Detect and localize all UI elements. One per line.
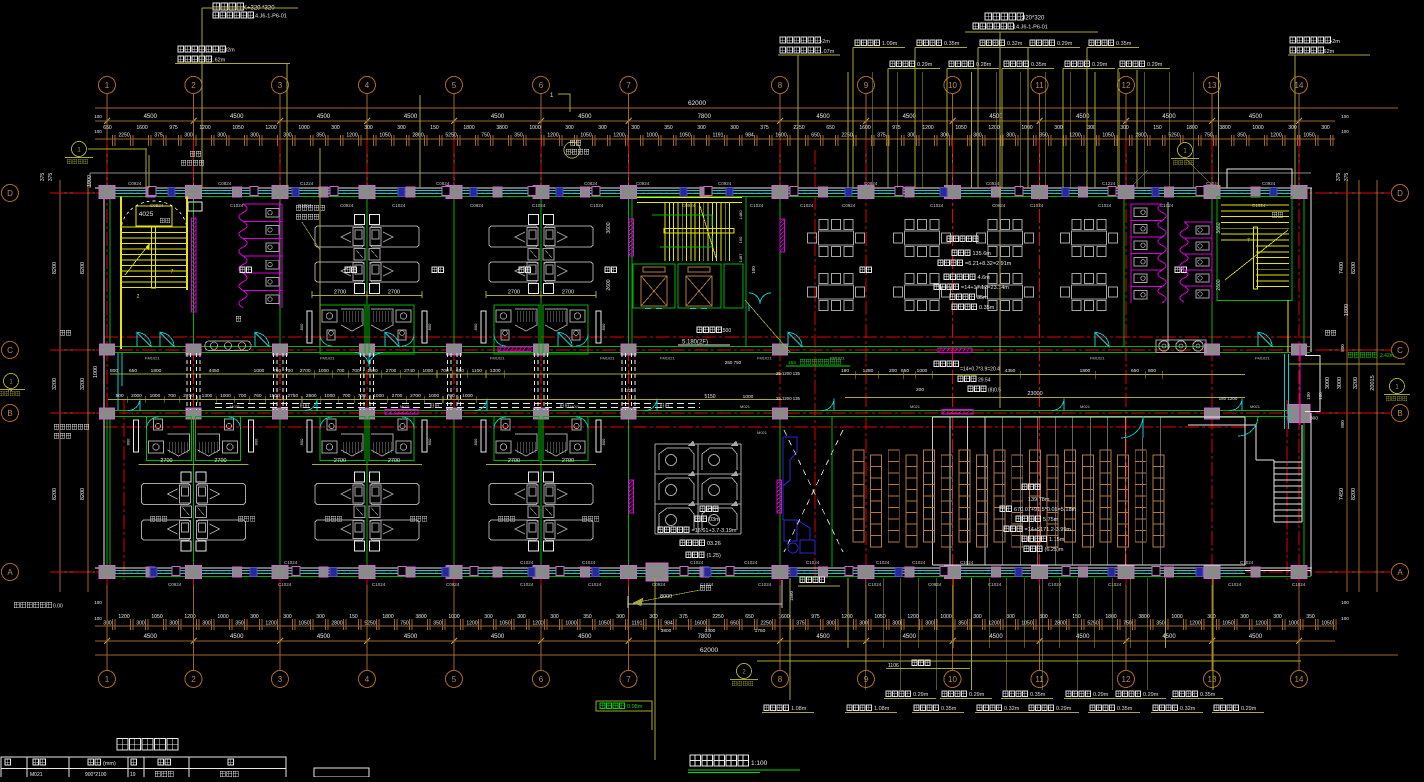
svg-text:C2024: C2024 xyxy=(1206,181,1220,186)
svg-text:2: 2 xyxy=(137,294,140,300)
svg-text:C0824: C0824 xyxy=(218,181,232,186)
svg-text:300: 300 xyxy=(973,133,982,139)
svg-text:FM1021: FM1021 xyxy=(600,356,615,361)
svg-text:2700: 2700 xyxy=(388,290,400,296)
svg-text:1200: 1200 xyxy=(1255,621,1266,627)
svg-text:C1024: C1024 xyxy=(1030,203,1044,208)
svg-text:C0824: C0824 xyxy=(584,181,598,186)
svg-text:1800: 1800 xyxy=(1186,125,1197,131)
svg-text:1200: 1200 xyxy=(265,125,276,131)
svg-text:350: 350 xyxy=(1156,621,1165,627)
svg-text:300: 300 xyxy=(730,125,739,131)
svg-text:700: 700 xyxy=(168,393,176,399)
svg-text:0.29m: 0.29m xyxy=(1147,62,1163,68)
svg-text:0.29m: 0.29m xyxy=(1241,706,1257,712)
svg-text:0.29m: 0.29m xyxy=(913,692,929,698)
svg-text:180 1200: 180 1200 xyxy=(1219,396,1238,401)
svg-text:1000: 1000 xyxy=(150,393,161,399)
svg-text:C0924: C0924 xyxy=(470,203,484,208)
svg-text:670.07+91.5*0.01=5.18m: 670.07+91.5*0.01=5.18m xyxy=(1014,507,1077,513)
svg-text:1050: 1050 xyxy=(1021,621,1032,627)
svg-text:6: 6 xyxy=(539,81,544,90)
svg-text:300: 300 xyxy=(364,125,373,131)
svg-text:5150: 5150 xyxy=(704,394,715,400)
svg-text:C1024: C1024 xyxy=(298,203,312,208)
svg-text:C1024: C1024 xyxy=(1108,582,1122,587)
svg-text:5: 5 xyxy=(452,81,457,90)
svg-text:4500: 4500 xyxy=(144,114,158,120)
svg-text:1600: 1600 xyxy=(136,125,147,131)
svg-text:300: 300 xyxy=(907,133,916,139)
svg-text:8200: 8200 xyxy=(80,488,86,500)
svg-text:2800: 2800 xyxy=(412,133,423,139)
svg-text:4: 4 xyxy=(365,81,370,90)
svg-text:8000: 8000 xyxy=(660,594,672,600)
svg-text:4500: 4500 xyxy=(317,634,331,640)
svg-text:1800: 1800 xyxy=(463,125,474,131)
svg-text:2700: 2700 xyxy=(562,290,574,296)
svg-text:300: 300 xyxy=(136,621,145,627)
svg-text:700: 700 xyxy=(336,368,344,374)
svg-text:2700: 2700 xyxy=(410,393,421,399)
svg-text:FM1021: FM1021 xyxy=(660,356,675,361)
svg-text:C0924: C0924 xyxy=(636,181,650,186)
svg-text:0.35m: 0.35m xyxy=(979,305,995,311)
svg-text:1191: 1191 xyxy=(632,621,643,627)
svg-text:8: 8 xyxy=(778,675,783,684)
svg-text:190: 190 xyxy=(841,368,849,374)
svg-text:300: 300 xyxy=(973,614,982,620)
svg-text:800: 800 xyxy=(1340,344,1345,352)
svg-text:C1024: C1024 xyxy=(806,560,820,565)
svg-text:C1024: C1024 xyxy=(590,203,604,208)
svg-text:1000: 1000 xyxy=(646,133,657,139)
svg-text:62000: 62000 xyxy=(700,647,718,654)
svg-text:300: 300 xyxy=(892,621,901,627)
svg-text:300: 300 xyxy=(169,621,178,627)
svg-text:2700: 2700 xyxy=(388,458,400,464)
svg-text:C: C xyxy=(7,346,13,355)
svg-text:975: 975 xyxy=(892,125,901,131)
svg-text:5.75m: 5.75m xyxy=(1043,517,1059,523)
svg-text:0.28m: 0.28m xyxy=(976,62,992,68)
svg-text:300: 300 xyxy=(250,614,259,620)
svg-text:FM1021: FM1021 xyxy=(320,356,335,361)
svg-text:300: 300 xyxy=(217,133,226,139)
svg-text:0.29m: 0.29m xyxy=(917,62,933,68)
svg-text:9: 9 xyxy=(864,675,869,684)
svg-text:5: 5 xyxy=(452,675,457,684)
svg-text:(1.25): (1.25) xyxy=(707,553,722,559)
svg-text:350: 350 xyxy=(1237,133,1246,139)
svg-text:C1024: C1024 xyxy=(868,582,882,587)
svg-text:4500: 4500 xyxy=(230,634,244,640)
svg-text:800: 800 xyxy=(427,438,432,445)
svg-text:1000: 1000 xyxy=(565,621,576,627)
svg-text:2700: 2700 xyxy=(508,458,520,464)
svg-text:3000: 3000 xyxy=(1325,377,1331,389)
svg-text:C1024: C1024 xyxy=(1292,582,1306,587)
svg-text:=14+17.12=23.14m: =14+17.12=23.14m xyxy=(961,285,1009,291)
svg-text:900*2100: 900*2100 xyxy=(85,772,107,777)
svg-text:7450: 7450 xyxy=(1339,488,1345,500)
svg-text:5.180(2F): 5.180(2F) xyxy=(682,340,708,346)
svg-text:984: 984 xyxy=(745,133,754,139)
svg-text:1050: 1050 xyxy=(151,614,162,620)
svg-text:300: 300 xyxy=(925,621,934,627)
svg-text:700: 700 xyxy=(352,368,360,374)
svg-text:300: 300 xyxy=(1054,125,1063,131)
svg-text:3800: 3800 xyxy=(1219,125,1230,131)
svg-text:1800: 1800 xyxy=(151,368,162,374)
svg-text:2700: 2700 xyxy=(562,458,574,464)
svg-text:03m: 03m xyxy=(709,517,720,523)
svg-text:1000: 1000 xyxy=(462,393,473,399)
svg-text:150: 150 xyxy=(430,125,439,131)
svg-text:25 1200 135: 25 1200 135 xyxy=(776,396,801,401)
svg-text:300: 300 xyxy=(1006,614,1015,620)
svg-text:3200: 3200 xyxy=(52,378,58,390)
svg-text:3800: 3800 xyxy=(661,628,672,634)
svg-text:3200: 3200 xyxy=(80,378,86,390)
svg-text:100: 100 xyxy=(1341,129,1349,134)
svg-text:375: 375 xyxy=(1344,173,1350,182)
svg-text:M021: M021 xyxy=(570,404,581,409)
svg-text:350: 350 xyxy=(1306,614,1315,620)
svg-text:1050: 1050 xyxy=(955,125,966,131)
svg-text:1580: 1580 xyxy=(789,590,794,601)
svg-text:2250: 2250 xyxy=(793,125,804,131)
svg-text:300: 300 xyxy=(283,614,292,620)
svg-text:1200: 1200 xyxy=(613,133,624,139)
svg-text:2700: 2700 xyxy=(300,368,311,374)
svg-text:2: 2 xyxy=(191,675,196,684)
svg-text:1800: 1800 xyxy=(1080,368,1091,374)
svg-text:150: 150 xyxy=(738,236,743,243)
svg-text:1050: 1050 xyxy=(298,621,309,627)
svg-text:2800: 2800 xyxy=(331,621,342,627)
svg-text:C1224: C1224 xyxy=(1102,181,1116,186)
svg-text:C0924: C0924 xyxy=(446,582,460,587)
svg-text:1050: 1050 xyxy=(499,621,510,627)
svg-text:4500: 4500 xyxy=(903,114,917,120)
svg-text:1050: 1050 xyxy=(1303,133,1314,139)
svg-text:0.29m: 0.29m xyxy=(1143,692,1159,698)
svg-text:1500: 1500 xyxy=(269,393,280,399)
svg-text:0.35m: 0.35m xyxy=(1200,692,1216,698)
svg-text:800: 800 xyxy=(1148,368,1156,374)
svg-text:0.29m: 0.29m xyxy=(969,692,985,698)
svg-text:0.35m: 0.35m xyxy=(1030,692,1046,698)
svg-text:1000: 1000 xyxy=(324,393,335,399)
svg-text:C1024: C1024 xyxy=(750,203,764,208)
svg-text:984: 984 xyxy=(664,621,673,627)
svg-text:750: 750 xyxy=(481,133,490,139)
svg-text:3300: 3300 xyxy=(705,628,716,634)
svg-text:150: 150 xyxy=(349,614,358,620)
svg-text:4500: 4500 xyxy=(1249,634,1263,640)
svg-text:300: 300 xyxy=(1120,125,1129,131)
svg-text:2740: 2740 xyxy=(404,368,415,374)
svg-text:375: 375 xyxy=(154,133,163,139)
svg-text:0.08m: 0.08m xyxy=(627,704,643,710)
svg-text:300: 300 xyxy=(103,621,112,627)
svg-text:1600: 1600 xyxy=(859,125,870,131)
svg-text:750: 750 xyxy=(1204,133,1213,139)
svg-text:1: 1 xyxy=(105,81,110,90)
svg-text:375: 375 xyxy=(796,621,805,627)
svg-text:800: 800 xyxy=(473,323,478,330)
svg-text:1000: 1000 xyxy=(743,394,754,400)
svg-text:C1024: C1024 xyxy=(582,560,596,565)
svg-text:FM1021: FM1021 xyxy=(1255,356,1270,361)
svg-text:650: 650 xyxy=(901,368,909,374)
svg-text:4025: 4025 xyxy=(139,211,154,218)
svg-text:1.07m: 1.07m xyxy=(819,49,835,55)
svg-text:1000: 1000 xyxy=(529,125,540,131)
svg-text:1500: 1500 xyxy=(720,328,731,334)
svg-text:300: 300 xyxy=(565,125,574,131)
svg-text:350: 350 xyxy=(235,621,244,627)
svg-text:5250: 5250 xyxy=(445,133,456,139)
svg-text:300: 300 xyxy=(1087,125,1096,131)
svg-text:FM1021: FM1021 xyxy=(145,356,160,361)
svg-text:7400: 7400 xyxy=(1339,262,1345,274)
svg-text:4450: 4450 xyxy=(209,368,220,374)
svg-text:100: 100 xyxy=(94,600,102,605)
svg-text:8200: 8200 xyxy=(80,262,86,274)
svg-text:0.29m: 0.29m xyxy=(1093,692,1109,698)
svg-text:800: 800 xyxy=(299,323,304,330)
svg-text:100: 100 xyxy=(1306,392,1311,400)
svg-text:M021: M021 xyxy=(400,404,411,409)
svg-text:1000: 1000 xyxy=(1171,614,1182,620)
svg-text:29.54: 29.54 xyxy=(978,378,991,384)
svg-text:12: 12 xyxy=(1122,675,1131,684)
svg-text:1.15m: 1.15m xyxy=(1049,537,1065,543)
svg-text:1000: 1000 xyxy=(428,393,439,399)
svg-text:350: 350 xyxy=(433,621,442,627)
svg-text:2700: 2700 xyxy=(392,393,403,399)
svg-text:300: 300 xyxy=(940,133,949,139)
svg-text:1200: 1200 xyxy=(118,614,129,620)
svg-text:300: 300 xyxy=(859,621,868,627)
svg-text:800: 800 xyxy=(427,323,432,330)
svg-text:1800: 1800 xyxy=(1105,614,1116,620)
svg-text:300: 300 xyxy=(250,133,259,139)
svg-text:4500: 4500 xyxy=(491,634,505,640)
svg-text:C1024: C1024 xyxy=(588,582,602,587)
svg-text:4500: 4500 xyxy=(491,114,505,120)
svg-text:800: 800 xyxy=(1340,420,1345,428)
svg-text:1300: 1300 xyxy=(490,368,501,374)
svg-text:35m: 35m xyxy=(977,295,988,301)
svg-text:>2m: >2m xyxy=(1329,39,1340,45)
svg-text:300: 300 xyxy=(397,125,406,131)
svg-text:C1024: C1024 xyxy=(960,560,974,565)
svg-text:.62m: .62m xyxy=(1322,49,1335,55)
svg-text:5250: 5250 xyxy=(1168,133,1179,139)
svg-text:10: 10 xyxy=(948,675,957,684)
svg-text:C0924: C0924 xyxy=(986,181,1000,186)
svg-text:3: 3 xyxy=(278,675,283,684)
svg-text:4500: 4500 xyxy=(816,114,830,120)
svg-text:100: 100 xyxy=(94,616,102,621)
svg-text:4500: 4500 xyxy=(317,114,331,120)
svg-text:1000: 1000 xyxy=(940,614,951,620)
svg-text:2700: 2700 xyxy=(334,290,346,296)
svg-text:1050: 1050 xyxy=(1222,621,1233,627)
svg-text:8200: 8200 xyxy=(52,488,58,500)
svg-text:300: 300 xyxy=(631,125,640,131)
svg-text:1050: 1050 xyxy=(580,133,591,139)
svg-text:139.78m: 139.78m xyxy=(1028,497,1050,503)
svg-text:2000: 2000 xyxy=(131,393,142,399)
svg-text:1: 1 xyxy=(105,675,110,684)
svg-text:700: 700 xyxy=(358,393,366,399)
svg-text:2800: 2800 xyxy=(306,393,317,399)
svg-text:0.32m: 0.32m xyxy=(1180,706,1196,712)
svg-text:C: C xyxy=(1397,346,1403,355)
svg-text:C0824: C0824 xyxy=(436,181,450,186)
svg-text:300: 300 xyxy=(1240,614,1249,620)
svg-text:C0924: C0924 xyxy=(842,203,856,208)
svg-text:4500: 4500 xyxy=(144,634,158,640)
svg-text:1050: 1050 xyxy=(1321,621,1332,627)
svg-text:23000: 23000 xyxy=(1027,391,1042,397)
svg-text:1200: 1200 xyxy=(922,125,933,131)
svg-text:100: 100 xyxy=(94,114,102,119)
svg-text:C0924: C0924 xyxy=(340,203,354,208)
svg-text:(6.25)m: (6.25)m xyxy=(1045,547,1064,553)
svg-text:1050: 1050 xyxy=(232,125,243,131)
svg-text:250 750: 250 750 xyxy=(725,360,742,365)
svg-text:100: 100 xyxy=(1341,616,1349,621)
svg-text:1200: 1200 xyxy=(199,125,210,131)
svg-text:100: 100 xyxy=(1318,392,1323,400)
svg-text:1200: 1200 xyxy=(1270,133,1281,139)
svg-text:3000: 3000 xyxy=(1337,377,1343,389)
svg-text:1.08m: 1.08m xyxy=(874,706,890,712)
svg-text:8200: 8200 xyxy=(1351,488,1357,500)
svg-text:C1224: C1224 xyxy=(300,181,314,186)
svg-text:800: 800 xyxy=(126,438,131,445)
svg-text:1200: 1200 xyxy=(547,133,558,139)
svg-text:1000: 1000 xyxy=(917,368,928,374)
svg-text:1200: 1200 xyxy=(988,621,999,627)
svg-text:0.35m: 0.35m xyxy=(1116,41,1132,47)
svg-text:300: 300 xyxy=(331,125,340,131)
svg-text:9: 9 xyxy=(864,81,869,90)
svg-text:C1024: C1024 xyxy=(520,582,534,587)
svg-text:3800: 3800 xyxy=(496,125,507,131)
svg-text:4500: 4500 xyxy=(816,634,830,640)
svg-text:1600: 1600 xyxy=(775,133,786,139)
svg-text:100: 100 xyxy=(751,266,756,274)
svg-text:1000: 1000 xyxy=(298,125,309,131)
svg-text:7800: 7800 xyxy=(698,634,712,640)
svg-text:11: 11 xyxy=(1035,675,1044,684)
svg-text:4500: 4500 xyxy=(1076,634,1090,640)
svg-text:5250: 5250 xyxy=(364,621,375,627)
svg-text:650: 650 xyxy=(103,125,112,131)
svg-text:300: 300 xyxy=(1321,125,1330,131)
svg-text:1200: 1200 xyxy=(466,621,477,627)
svg-text:C0924: C0924 xyxy=(682,203,696,208)
svg-text:C0924: C0924 xyxy=(1262,181,1276,186)
svg-text:8200: 8200 xyxy=(1351,262,1357,274)
svg-text:C1024: C1024 xyxy=(520,560,534,565)
svg-text:300: 300 xyxy=(316,614,325,620)
svg-text:2250: 2250 xyxy=(841,133,852,139)
svg-text:150: 150 xyxy=(1153,125,1162,131)
svg-text:0.32m: 0.32m xyxy=(1007,41,1023,47)
svg-text:760: 760 xyxy=(254,393,262,399)
svg-text:2600: 2600 xyxy=(606,279,612,290)
svg-text:32m: 32m xyxy=(224,48,235,54)
svg-text:C1024: C1024 xyxy=(690,560,704,565)
svg-text:1480: 1480 xyxy=(738,210,743,220)
svg-text:(mm): (mm) xyxy=(103,761,116,767)
svg-text:C1024: C1024 xyxy=(284,560,298,565)
svg-text:800: 800 xyxy=(254,438,259,445)
svg-text:325: 325 xyxy=(626,388,634,393)
svg-text:320*320: 320*320 xyxy=(1022,16,1045,22)
svg-text:8200: 8200 xyxy=(52,262,58,274)
svg-text:3800: 3800 xyxy=(415,614,426,620)
svg-text:FM1021: FM1021 xyxy=(1090,356,1105,361)
svg-text:M021: M021 xyxy=(30,772,43,777)
svg-text:1200: 1200 xyxy=(184,614,195,620)
svg-text:375: 375 xyxy=(760,125,769,131)
svg-text:200: 200 xyxy=(889,368,897,374)
svg-text:375: 375 xyxy=(877,133,886,139)
svg-text:C1024: C1024 xyxy=(1240,560,1254,565)
svg-text:650: 650 xyxy=(811,133,820,139)
svg-text:300: 300 xyxy=(649,614,658,620)
svg-text:2250: 2250 xyxy=(118,133,129,139)
svg-text:1000: 1000 xyxy=(318,368,329,374)
svg-text:1200: 1200 xyxy=(265,621,276,627)
svg-text:1300: 1300 xyxy=(202,393,213,399)
svg-text:=14+0.7*3.9=20.4: =14+0.7*3.9=20.4 xyxy=(960,367,1000,373)
svg-text:1000: 1000 xyxy=(422,368,433,374)
svg-text:4500: 4500 xyxy=(404,634,418,640)
svg-text:C0924: C0924 xyxy=(652,582,666,587)
svg-text:8: 8 xyxy=(778,81,783,90)
svg-text:13: 13 xyxy=(1208,81,1217,90)
svg-text:4500: 4500 xyxy=(230,114,244,120)
svg-text:62000: 62000 xyxy=(688,100,706,107)
svg-text:1200: 1200 xyxy=(346,133,357,139)
svg-text:14: 14 xyxy=(1295,81,1304,90)
svg-text:650: 650 xyxy=(129,368,137,374)
svg-text:2700: 2700 xyxy=(508,290,520,296)
svg-text:C1024: C1024 xyxy=(930,203,944,208)
svg-text:800: 800 xyxy=(473,438,478,445)
svg-text:C1024: C1024 xyxy=(532,203,546,208)
svg-text:100: 100 xyxy=(1341,600,1349,605)
svg-text:650: 650 xyxy=(730,621,739,627)
svg-text:1100: 1100 xyxy=(472,368,483,374)
svg-text:C1024: C1024 xyxy=(278,582,292,587)
svg-text:800: 800 xyxy=(299,438,304,445)
svg-text:C0924: C0924 xyxy=(992,203,1006,208)
svg-text:C1024: C1024 xyxy=(876,560,890,565)
svg-text:300: 300 xyxy=(550,614,559,620)
svg-text:4500: 4500 xyxy=(1249,114,1263,120)
svg-text:1800: 1800 xyxy=(1344,304,1350,316)
